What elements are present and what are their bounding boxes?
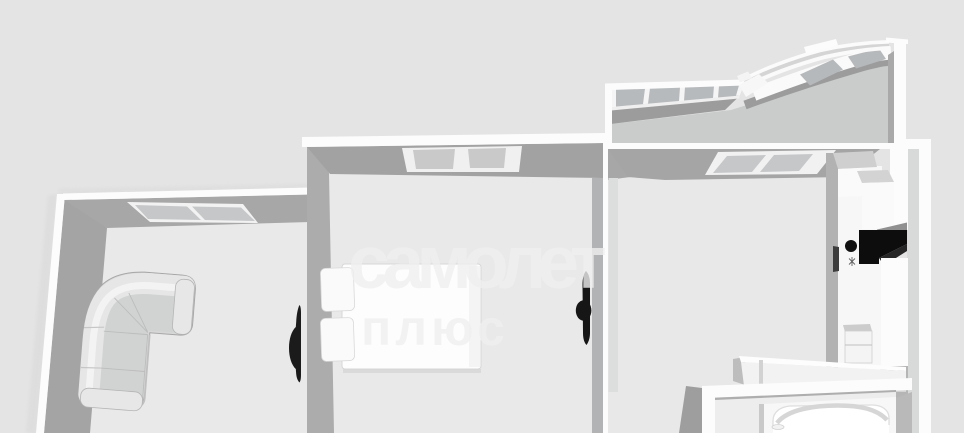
svg-text:плюс: плюс [361, 300, 509, 356]
svg-text:самолет: самолет [348, 220, 605, 304]
